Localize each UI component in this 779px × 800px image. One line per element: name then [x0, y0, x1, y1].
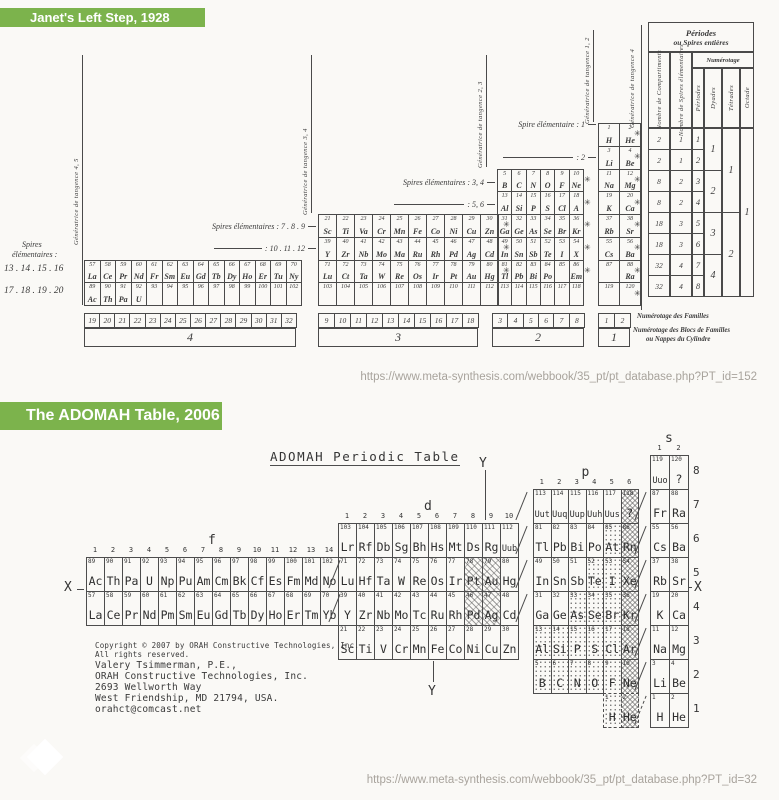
- element-cell: 59Pr: [122, 591, 141, 626]
- asterisk-mark: ✳: [634, 175, 641, 184]
- element-number: 26: [409, 215, 426, 223]
- element-number: 91: [124, 558, 131, 565]
- element-number: 54: [623, 558, 630, 565]
- element-symbol: Pr: [116, 272, 131, 282]
- element-number: 87: [652, 490, 659, 497]
- family-number-cell: 10: [334, 313, 351, 328]
- element-number: 86: [623, 524, 630, 531]
- element-number: 80: [481, 261, 498, 269]
- family-number-cell: 32: [281, 313, 297, 328]
- element-cell: 82Pb: [511, 260, 526, 284]
- element-symbol: O: [541, 181, 554, 191]
- element-cell: 66Dy: [248, 591, 267, 626]
- element-cell: 117: [554, 282, 569, 306]
- element-symbol: Ba: [670, 540, 688, 554]
- element-cell: 1H: [650, 693, 670, 728]
- janet-source-url[interactable]: https://www.meta-synthesis.com/webbook/3…: [360, 371, 757, 383]
- element-number: 27: [448, 626, 455, 633]
- element-number: 119: [599, 283, 619, 291]
- element-number: 114: [553, 490, 564, 497]
- element-cell: 45Rh: [446, 591, 465, 626]
- element-symbol: Zn: [501, 642, 518, 656]
- element-cell: 63Eu: [194, 591, 213, 626]
- element-number: 101: [304, 558, 315, 565]
- family-number-cell: 3: [492, 313, 508, 328]
- element-number: 3: [652, 660, 656, 667]
- element-number: 43: [391, 238, 408, 246]
- adomah-source-url[interactable]: https://www.meta-synthesis.com/webbook/3…: [367, 774, 757, 786]
- element-cell: 85: [554, 260, 569, 284]
- element-symbol: Rh: [447, 608, 464, 622]
- spire-annotation: : 10 . 11 . 12: [214, 242, 316, 254]
- element-symbol: Nb: [375, 608, 392, 622]
- family-number-cell: 20: [99, 313, 115, 328]
- element-cell: 91Pa: [122, 557, 141, 592]
- element-cell: 58Ce: [100, 260, 117, 284]
- element-number: 3: [599, 147, 619, 155]
- block-number-cell: 1: [598, 328, 630, 347]
- copyright-line: West Friendship, MD 21794, USA.: [95, 693, 279, 704]
- element-cell: 1H: [603, 693, 622, 728]
- legend-tetrade-value: 1: [722, 128, 740, 213]
- element-number: 84: [541, 261, 554, 269]
- element-cell: 39Y: [338, 591, 357, 626]
- element-cell: 53I: [603, 557, 622, 592]
- element-cell: 90Th: [104, 557, 123, 592]
- element-number: 103: [340, 524, 351, 531]
- element-cell: 27Co: [426, 214, 445, 238]
- element-cell: 94: [162, 282, 179, 306]
- element-cell: 32Ge: [511, 214, 526, 238]
- legend-compartiments-value: 18: [648, 212, 670, 234]
- element-symbol: Fr: [651, 506, 669, 520]
- element-symbol: Lr: [339, 540, 356, 554]
- element-symbol: Sb: [527, 250, 540, 260]
- element-cell: 14Si: [511, 191, 526, 215]
- legend-dyade-value: 3: [704, 212, 722, 255]
- asterisk-mark: ✳: [634, 266, 641, 275]
- element-cell: 33As: [526, 214, 541, 238]
- copyright-line: All rights reserved.: [95, 650, 189, 659]
- element-number: 19: [652, 592, 659, 599]
- element-symbol: Tb: [209, 272, 224, 282]
- legend-compartiments-value: 8: [648, 191, 670, 213]
- element-symbol: Eu: [195, 608, 212, 622]
- element-number: 118: [570, 283, 583, 291]
- element-number: 64: [194, 261, 209, 269]
- element-symbol: Ge: [512, 227, 525, 237]
- family-number-cell: 8: [569, 313, 585, 328]
- element-number: 101: [271, 283, 286, 291]
- generatrice-line: [593, 30, 594, 122]
- element-number: 55: [652, 524, 659, 531]
- element-cell: 21Sc: [318, 214, 337, 238]
- element-number: 31: [535, 592, 542, 599]
- asterisk-mark: ✳: [584, 243, 591, 252]
- element-number: 14: [512, 192, 525, 200]
- generatrice-label: Génératrice de tangence 4: [629, 28, 636, 128]
- element-symbol: Va: [355, 227, 372, 237]
- element-cell: 68Er: [255, 260, 272, 284]
- element-cell: 57La: [84, 260, 101, 284]
- element-symbol: Tc: [411, 608, 428, 622]
- element-number: 36: [570, 215, 583, 223]
- element-symbol: Cr: [393, 642, 410, 656]
- copyright-line: Valery Tsimmerman, P.E.,: [95, 660, 237, 671]
- element-symbol: Cr: [373, 227, 390, 237]
- element-cell: 9F: [603, 659, 622, 694]
- period-number: 5: [693, 566, 707, 579]
- block-number-cell: 4: [84, 328, 296, 347]
- asterisk-mark: ✳: [584, 266, 591, 275]
- element-number: 88: [671, 490, 678, 497]
- element-number: 46: [445, 238, 462, 246]
- element-cell: 100Fm: [284, 557, 303, 592]
- copyright-line: 2693 Wellworth Way: [95, 682, 202, 693]
- element-symbol: S: [541, 204, 554, 214]
- element-number: 29: [463, 215, 480, 223]
- element-cell: 66Dy: [224, 260, 241, 284]
- element-cell: 23V: [374, 625, 393, 660]
- element-symbol: C: [552, 676, 569, 690]
- element-cell: 16S: [540, 191, 555, 215]
- element-number: 102: [322, 558, 333, 565]
- period-number: 6: [693, 532, 707, 545]
- element-number: 78: [445, 261, 462, 269]
- legend-compartiments-value: 8: [648, 170, 670, 192]
- legend-col-compartiments-label: Nombre de Compartiments: [656, 50, 663, 129]
- element-symbol: Ma: [391, 250, 408, 260]
- element-number: 45: [427, 238, 444, 246]
- element-symbol: In: [534, 574, 551, 588]
- period-number: 3: [693, 634, 707, 647]
- element-symbol: La: [87, 608, 104, 622]
- element-cell: 116: [540, 282, 555, 306]
- element-number: 66: [250, 592, 257, 599]
- element-cell: 11Na: [598, 169, 620, 193]
- element-number: 7: [570, 660, 574, 667]
- element-cell: 63Eu: [177, 260, 194, 284]
- element-cell: 19K: [650, 591, 670, 626]
- element-symbol: N: [569, 676, 586, 690]
- element-cell: 24Cr: [392, 625, 411, 660]
- element-symbol: Cd: [481, 250, 498, 260]
- element-number: 59: [124, 592, 131, 599]
- element-symbol: Tb: [231, 608, 248, 622]
- element-number: 2: [623, 694, 627, 701]
- element-number: 10: [570, 170, 583, 178]
- block-column-number: 13: [302, 546, 320, 555]
- element-cell: 19K: [598, 191, 620, 215]
- element-number: 97: [232, 558, 239, 565]
- element-number: 105: [376, 524, 387, 531]
- legend-col-tetrades: Tétrades: [722, 68, 740, 128]
- block-column-number: 6: [428, 512, 446, 521]
- element-number: 71: [319, 261, 336, 269]
- generatrice-label: Génératrice de tangence 2, 3: [477, 56, 484, 168]
- block-column-number: 3: [568, 478, 586, 487]
- element-symbol: Ca: [670, 608, 688, 622]
- element-symbol: Br: [604, 608, 621, 622]
- element-symbol: Cu: [483, 642, 500, 656]
- element-number: 51: [570, 558, 577, 565]
- element-cell: 51Sb: [526, 237, 541, 261]
- element-symbol: Al: [534, 642, 551, 656]
- element-symbol: B: [534, 676, 551, 690]
- element-symbol: Th: [101, 295, 116, 305]
- element-symbol: Uuh: [587, 510, 604, 520]
- element-cell: 24Cr: [372, 214, 391, 238]
- element-cell: 18A: [569, 191, 584, 215]
- element-cell: 61Fr: [146, 260, 163, 284]
- element-number: 89: [88, 558, 95, 565]
- element-number: 21: [340, 626, 347, 633]
- spires-left-note: élémentaires :: [12, 250, 57, 259]
- block-column-number: 6: [176, 546, 194, 555]
- element-number: 117: [605, 490, 616, 497]
- block-column-number: 8: [212, 546, 230, 555]
- element-cell: 58Ce: [104, 591, 123, 626]
- element-cell: 109Mt: [446, 523, 465, 558]
- spires-left-note: 17 . 18 . 19 . 20: [4, 286, 63, 296]
- block-column-number: 11: [266, 546, 284, 555]
- element-symbol: Br: [555, 227, 568, 237]
- element-cell: 45Rh: [426, 237, 445, 261]
- element-cell: 52Te: [586, 557, 605, 592]
- element-symbol: Ge: [552, 608, 569, 622]
- element-number: 79: [463, 261, 480, 269]
- element-cell: 81Tl: [533, 523, 552, 558]
- element-number: 68: [256, 261, 271, 269]
- element-cell: 52Te: [540, 237, 555, 261]
- element-cell: 65Tb: [208, 260, 225, 284]
- block-column-number: 4: [392, 512, 410, 521]
- legend-compartiments-value: 32: [648, 254, 670, 276]
- element-symbol: Te: [541, 250, 554, 260]
- element-cell: 5B: [533, 659, 552, 694]
- element-cell: 82Pb: [551, 523, 570, 558]
- element-cell: 99Es: [266, 557, 285, 592]
- legend-spires-value: 3: [670, 212, 692, 234]
- element-cell: 109: [426, 282, 445, 306]
- element-number: 82: [553, 524, 560, 531]
- element-symbol: Os: [429, 574, 446, 588]
- family-caption-2: Numérotage des Blocs de Familles: [633, 327, 730, 334]
- element-cell: 88Ra: [669, 489, 689, 524]
- element-symbol: As: [569, 608, 586, 622]
- element-number: 18: [570, 192, 583, 200]
- element-symbol: Lu: [339, 574, 356, 588]
- element-number: 107: [412, 524, 423, 531]
- element-number: 19: [599, 192, 619, 200]
- element-number: 82: [512, 261, 525, 269]
- generatrice-line: [311, 55, 312, 213]
- element-number: 37: [652, 558, 659, 565]
- element-symbol: Hs: [429, 540, 446, 554]
- element-cell: 115Uup: [568, 489, 587, 524]
- element-cell: 60Nd: [140, 591, 159, 626]
- legend-dyade-value: 4: [704, 254, 722, 297]
- element-symbol: Ta: [355, 272, 372, 282]
- block-column-number: 2: [356, 512, 374, 521]
- element-symbol: F: [604, 676, 621, 690]
- element-number: 52: [588, 558, 595, 565]
- legend-spires-value: 3: [670, 233, 692, 255]
- element-symbol: Li: [651, 676, 669, 690]
- element-symbol: F: [555, 181, 568, 191]
- element-cell: 37Rb: [598, 214, 620, 238]
- element-symbol: P: [569, 642, 586, 656]
- legend-col-dyades-label: Dyades: [710, 87, 717, 109]
- element-number: 106: [373, 283, 390, 291]
- element-number: 40: [358, 592, 365, 599]
- element-number: 69: [304, 592, 311, 599]
- family-number-cell: 4: [507, 313, 523, 328]
- adomah-title: ADOMAH Periodic Table: [270, 449, 460, 466]
- element-number: 60: [142, 592, 149, 599]
- element-cell: 43Ma: [390, 237, 409, 261]
- legend-tetrade-value: 2: [722, 212, 740, 297]
- block-column-number: 9: [230, 546, 248, 555]
- element-number: 60: [132, 261, 147, 269]
- element-cell: 17Cl: [554, 191, 569, 215]
- element-symbol: Os: [409, 272, 426, 282]
- element-cell: 97: [208, 282, 225, 306]
- block-column-number: 7: [194, 546, 212, 555]
- element-number: 116: [541, 283, 554, 291]
- element-cell: 95: [177, 282, 194, 306]
- element-symbol: Sb: [569, 574, 586, 588]
- element-cell: 8O: [540, 169, 555, 193]
- element-cell: 41Nb: [374, 591, 393, 626]
- element-number: 37: [599, 215, 619, 223]
- element-cell: 74W: [372, 260, 391, 284]
- element-cell: 35Br: [603, 591, 622, 626]
- legend-title-line1: Périodes: [686, 28, 716, 38]
- block-column-number: 3: [374, 512, 392, 521]
- element-number: 24: [373, 215, 390, 223]
- element-cell: 92U: [140, 557, 159, 592]
- element-cell: 38Sr: [669, 557, 689, 592]
- element-cell: 83Bi: [526, 260, 541, 284]
- element-number: 1: [652, 694, 656, 701]
- element-number: 21: [319, 215, 336, 223]
- element-symbol: Tu: [271, 272, 286, 282]
- element-symbol: V: [375, 642, 392, 656]
- element-number: 105: [355, 283, 372, 291]
- element-number: 112: [502, 524, 513, 531]
- annotation-arrow: [588, 157, 596, 158]
- element-symbol: K: [651, 608, 669, 622]
- generatrice-label: Génératrice de tangence 4, 5: [73, 95, 80, 245]
- element-cell: 74W: [392, 557, 411, 592]
- element-cell: 101Md: [302, 557, 321, 592]
- element-number: 79: [484, 558, 491, 565]
- element-symbol: Ho: [240, 272, 255, 282]
- annotation-dash: [394, 204, 464, 205]
- spire-annotation-text: : 5, 6: [467, 200, 484, 209]
- element-cell: 2He: [669, 693, 689, 728]
- generatrice-line: [82, 55, 83, 305]
- element-cell: 107Bh: [410, 523, 429, 558]
- element-cell: 111: [462, 282, 481, 306]
- legend-col-dyades: Dyades: [704, 68, 722, 128]
- element-number: 12: [671, 626, 678, 633]
- element-symbol: As: [527, 227, 540, 237]
- element-symbol: Si: [512, 204, 525, 214]
- element-number: 4: [671, 660, 675, 667]
- element-number: 48: [502, 592, 509, 599]
- element-cell: 46Pd: [464, 591, 483, 626]
- element-number: 104: [358, 524, 369, 531]
- element-cell: 91Pa: [115, 282, 132, 306]
- element-symbol: H: [604, 710, 621, 724]
- element-symbol: Pa: [123, 574, 140, 588]
- legend-compartiments-value: 18: [648, 233, 670, 255]
- element-cell: 96Cm: [212, 557, 231, 592]
- element-cell: 39Y: [318, 237, 337, 261]
- legend-col-octade-label: Octade: [744, 87, 751, 108]
- element-number: 106: [394, 524, 405, 531]
- element-cell: 15P: [568, 625, 587, 660]
- legend-periode-value: 8: [692, 275, 704, 297]
- element-symbol: U: [141, 574, 158, 588]
- element-cell: 14Si: [551, 625, 570, 660]
- copyright-line: ORAH Constructive Technologies, Inc.: [95, 671, 308, 682]
- element-cell: 26Fe: [408, 214, 427, 238]
- element-number: 64: [214, 592, 221, 599]
- element-number: 72: [358, 558, 365, 565]
- element-symbol: Bi: [569, 540, 586, 554]
- element-symbol: Co: [427, 227, 444, 237]
- element-symbol: Mg: [670, 642, 688, 656]
- element-number: 28: [445, 215, 462, 223]
- element-cell: 5B: [497, 169, 512, 193]
- annotation-arrow: [487, 204, 495, 205]
- element-symbol: Ir: [447, 574, 464, 588]
- element-number: 36: [623, 592, 630, 599]
- element-cell: 25Mn: [410, 625, 429, 660]
- element-number: 104: [337, 283, 354, 291]
- element-cell: 9F: [554, 169, 569, 193]
- legend-col-compartiments: Nombre de Compartiments: [648, 52, 670, 128]
- legend-compartiments-value: 2: [648, 128, 670, 150]
- legend-numerotage-header: Numérotage: [692, 52, 754, 68]
- asterisk-mark: ✳: [634, 220, 641, 229]
- element-cell: 16S: [586, 625, 605, 660]
- element-number: 57: [85, 261, 100, 269]
- family-caption-1: Numérotage des Familles: [637, 313, 709, 320]
- family-number-cell: 21: [114, 313, 130, 328]
- element-number: 81: [535, 524, 542, 531]
- element-cell: 62Sm: [162, 260, 179, 284]
- family-number-cell: 30: [251, 313, 267, 328]
- family-number-cell: 22: [129, 313, 145, 328]
- element-number: 65: [232, 592, 239, 599]
- legend-octade-value: 1: [740, 128, 754, 297]
- element-cell: 49In: [533, 557, 552, 592]
- element-cell: 118?: [621, 489, 640, 524]
- element-symbol: Fm: [285, 574, 302, 588]
- element-symbol: Mo: [393, 608, 410, 622]
- element-cell: 95Am: [194, 557, 213, 592]
- element-cell: 78Pt: [444, 260, 463, 284]
- element-number: 35: [605, 592, 612, 599]
- family-number-cell: 18: [462, 313, 479, 328]
- element-number: 99: [240, 283, 255, 291]
- element-cell: 72Hf: [356, 557, 375, 592]
- copyright-line: orahct@comcast.net: [95, 704, 202, 715]
